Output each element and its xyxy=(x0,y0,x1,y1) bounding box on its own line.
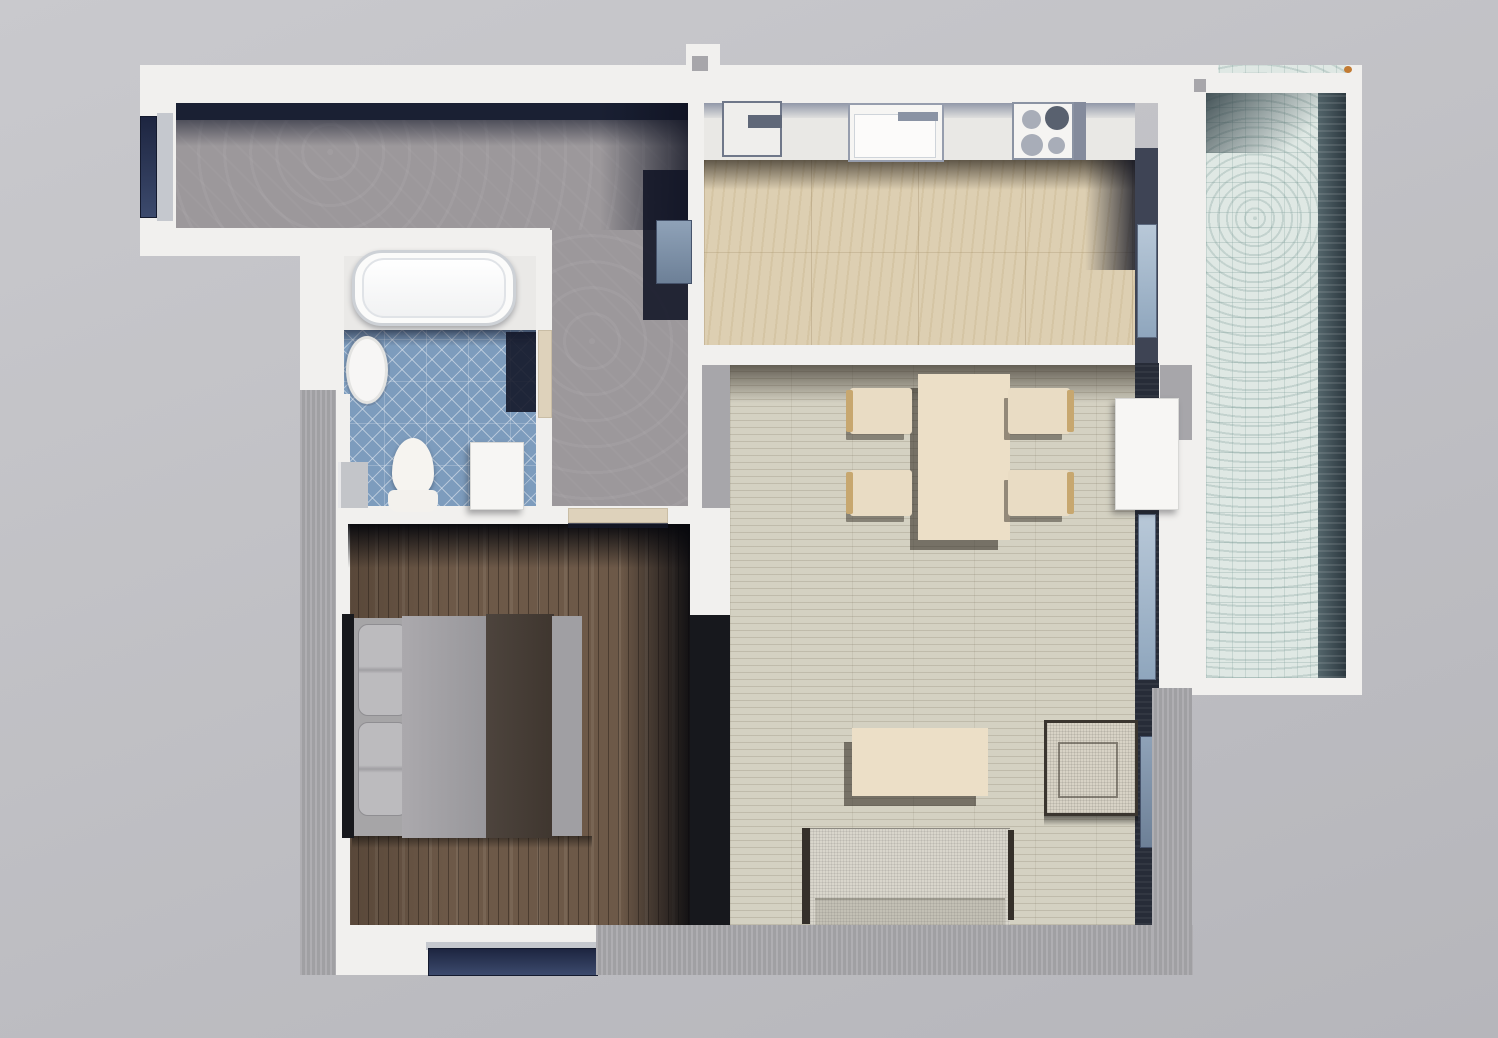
bed-headboard xyxy=(342,614,354,838)
kitchen-window-glass xyxy=(1137,224,1157,338)
bedroom-living-divider-wall xyxy=(690,615,730,928)
bathroom-side-cabinet xyxy=(338,462,368,508)
chair-arm-2 xyxy=(846,472,853,514)
bed-pillow-top xyxy=(358,624,408,716)
entry-gray-wall-stub xyxy=(702,363,730,508)
stove-burner-3 xyxy=(1021,134,1043,156)
chair-arm-4 xyxy=(1067,472,1074,514)
north-outer-wall xyxy=(140,65,1192,103)
sofa-seat-band xyxy=(815,898,1005,925)
kitchen-faucet xyxy=(898,112,938,121)
east-ledge xyxy=(1152,688,1192,975)
floor-plan-canvas xyxy=(0,0,1498,1038)
balcony-corner-marker xyxy=(1344,66,1352,73)
stove-burner-1 xyxy=(1022,110,1041,129)
toilet-base xyxy=(388,490,438,512)
balcony-top-shadow xyxy=(1206,93,1346,153)
bedroom-window-glass xyxy=(428,948,598,976)
leaning-glass-panel xyxy=(656,220,692,284)
bathroom-door-threshold xyxy=(538,330,552,418)
dining-table xyxy=(918,374,1010,540)
kitchen-under-counter-shadow xyxy=(704,160,1135,190)
bed-throw-runner xyxy=(486,614,554,838)
bathtub-inner-rim xyxy=(362,258,506,318)
chair-arm-3 xyxy=(1067,390,1074,432)
armchair-seat xyxy=(1058,742,1118,798)
kitchen-cabinet-appliance xyxy=(748,115,782,128)
dining-chair-2 xyxy=(850,470,912,516)
bathroom-west-wall-upper xyxy=(300,254,344,394)
balcony-notch xyxy=(1194,79,1206,92)
stove-burner-2 xyxy=(1045,106,1069,130)
armchair-shadow xyxy=(1044,816,1138,826)
bathroom-sink xyxy=(346,336,388,404)
dining-chair-3 xyxy=(1008,388,1070,434)
stove-side-band xyxy=(1074,102,1086,160)
dining-chair-1 xyxy=(850,388,912,434)
tall-cabinet xyxy=(1115,398,1179,510)
balcony-east-wall xyxy=(1346,65,1362,694)
balcony-shadow-band xyxy=(1318,93,1346,678)
north-stub-notch xyxy=(692,56,708,71)
stove-burner-4 xyxy=(1048,137,1065,154)
living-west-wall-upper xyxy=(688,363,702,525)
bed-foot-strip xyxy=(552,616,582,836)
bed-pillow-bottom xyxy=(358,722,408,816)
balcony-west-wall xyxy=(1192,93,1206,678)
chair-arm-1 xyxy=(846,390,853,432)
bedroom-door-threshold xyxy=(568,508,668,523)
kitchen-east-floor-shadow xyxy=(1085,160,1135,270)
balcony-door-glass xyxy=(1138,514,1156,680)
balcony-north-stub xyxy=(1192,65,1218,79)
sofa-left-arm xyxy=(802,828,810,924)
kitchen-south-wall xyxy=(688,345,1135,365)
sofa-right-arm xyxy=(1008,830,1014,920)
hallway-window-glass xyxy=(140,116,157,218)
south-ledge xyxy=(596,925,1193,975)
coffee-table xyxy=(852,728,988,796)
hallway-window-sill xyxy=(157,113,173,221)
bathroom-door-shadow-wedge xyxy=(506,332,538,412)
bedroom-east-shadow xyxy=(620,524,690,925)
west-ledge xyxy=(300,390,336,975)
bedroom-door-shadow-line xyxy=(568,523,668,528)
balcony-south-wall xyxy=(1192,678,1362,695)
door-jamb-wall xyxy=(690,508,730,618)
kitchen-corner-cabinet xyxy=(722,101,782,157)
bed-duvet xyxy=(402,616,490,838)
dining-chair-4 xyxy=(1008,470,1070,516)
washing-machine xyxy=(470,442,524,510)
